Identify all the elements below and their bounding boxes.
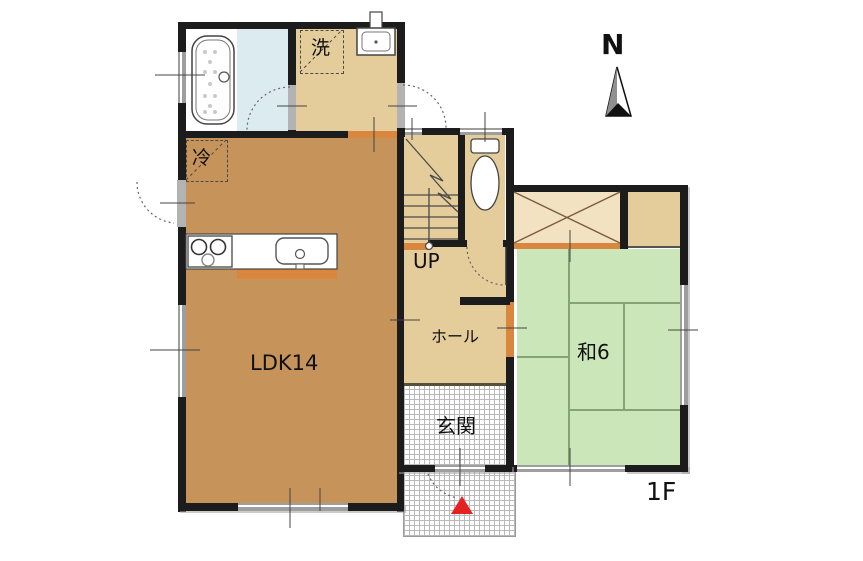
toilet-door-arc <box>467 247 505 285</box>
entrance-path-line <box>428 474 457 498</box>
toilet-icon <box>471 139 499 210</box>
stairs-icon <box>404 139 458 250</box>
north-arrow-icon <box>606 67 631 116</box>
fixtures-layer <box>0 0 863 561</box>
bath-door-arc <box>247 87 290 130</box>
stove-icon <box>188 236 232 267</box>
washroom-label: 洗 <box>311 39 330 58</box>
closet-x-icon <box>514 192 620 243</box>
hall-label: ホール <box>431 329 479 345</box>
stairs-up-label: UP <box>413 251 440 271</box>
vanity-sink-icon <box>357 12 395 55</box>
compass-label: N <box>601 31 624 59</box>
bathtub-icon <box>192 36 234 124</box>
ldk-label: LDK14 <box>250 353 318 374</box>
refrigerator-label: 冷 <box>192 149 211 168</box>
entrance-marker-icon <box>451 496 473 514</box>
kitchen-counter-icon <box>186 234 337 269</box>
entrance-label: 玄関 <box>436 416 476 436</box>
opening-ticks <box>150 75 698 528</box>
floor-plan: 洗 冷 LDK14 UP ホール 玄関 和6 1F N <box>0 0 863 561</box>
kitchen-sink-icon <box>276 238 328 269</box>
tatami-room-label: 和6 <box>577 342 610 362</box>
floor-label: 1F <box>646 479 676 504</box>
